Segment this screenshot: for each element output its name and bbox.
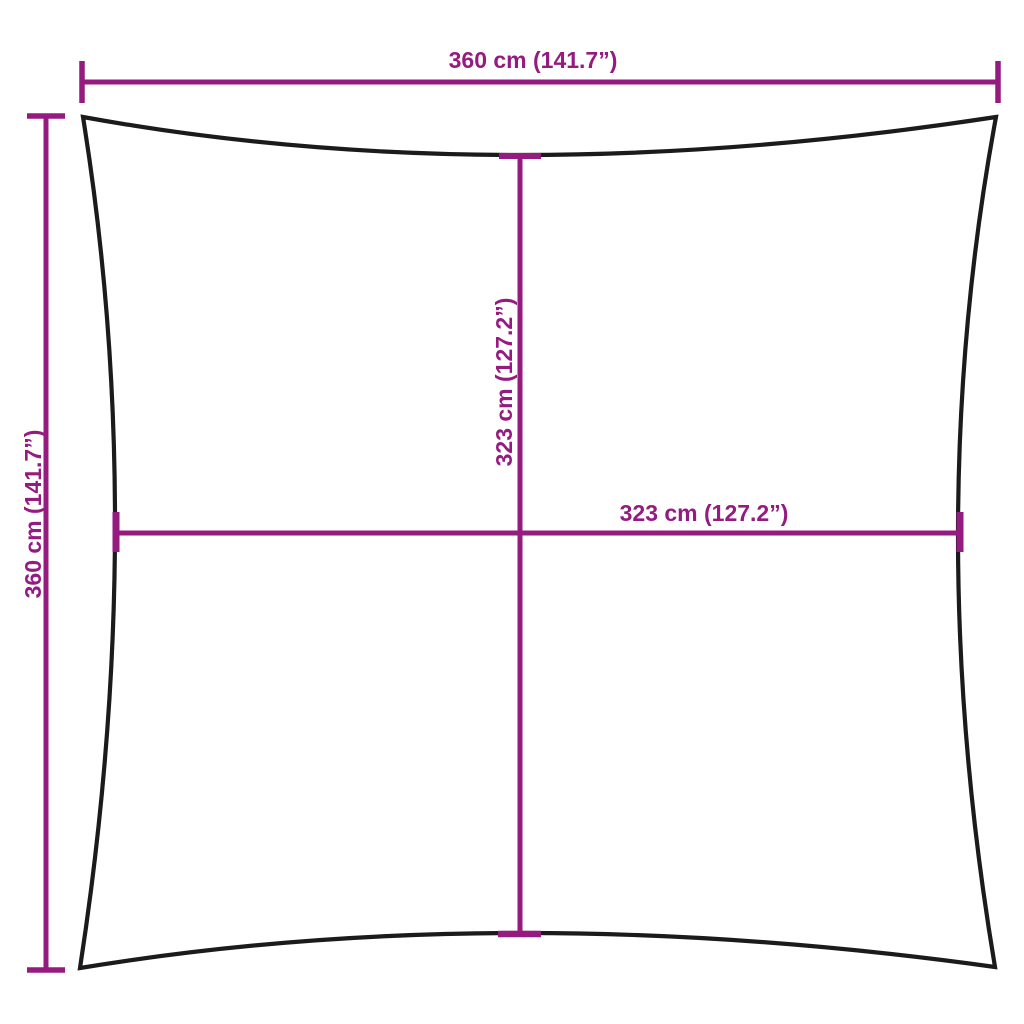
outer-width-label: 360 cm (141.7”) — [449, 47, 618, 73]
outer-height-label: 360 cm (141.7”) — [20, 430, 46, 599]
inner-height-label: 323 cm (127.2”) — [491, 298, 517, 467]
diagram-svg: 360 cm (141.7”) 360 cm (141.7”) 323 cm (… — [0, 0, 1024, 1024]
product-dimension-diagram: 360 cm (141.7”) 360 cm (141.7”) 323 cm (… — [0, 0, 1024, 1024]
inner-width-label: 323 cm (127.2”) — [620, 500, 789, 526]
